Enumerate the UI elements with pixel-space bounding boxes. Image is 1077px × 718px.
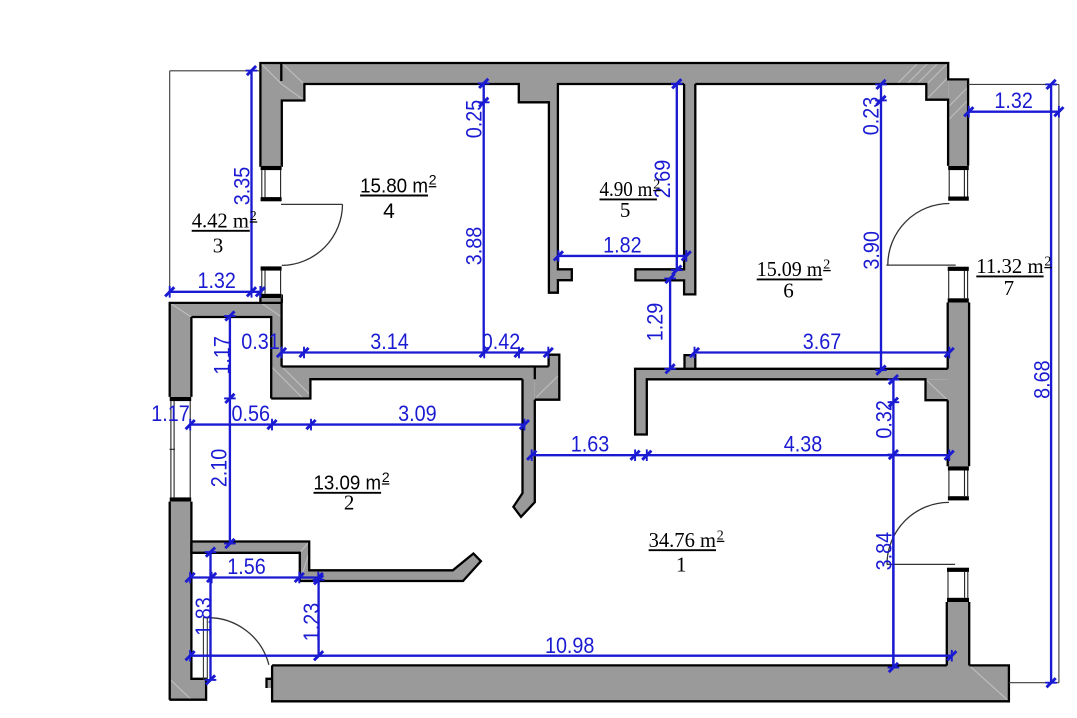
svg-text:2.10: 2.10 — [207, 449, 232, 488]
svg-text:3.88: 3.88 — [462, 227, 487, 266]
svg-text:15.80 m: 15.80 m — [360, 174, 428, 197]
svg-text:0.56: 0.56 — [232, 401, 271, 426]
svg-text:0.42: 0.42 — [482, 329, 521, 354]
svg-text:1.17: 1.17 — [151, 401, 190, 426]
svg-text:6: 6 — [783, 278, 794, 302]
svg-text:5: 5 — [620, 198, 631, 222]
svg-text:3.90: 3.90 — [859, 231, 884, 270]
svg-text:1.23: 1.23 — [299, 603, 324, 642]
svg-text:1.83: 1.83 — [191, 597, 216, 636]
svg-text:3.35: 3.35 — [230, 167, 255, 206]
svg-text:3.09: 3.09 — [398, 401, 437, 426]
svg-text:1.56: 1.56 — [227, 554, 266, 579]
svg-text:3: 3 — [213, 234, 224, 258]
svg-text:3.14: 3.14 — [370, 329, 409, 354]
svg-text:1.63: 1.63 — [571, 432, 610, 457]
svg-text:0.25: 0.25 — [462, 100, 487, 139]
svg-text:2: 2 — [429, 172, 437, 188]
svg-text:1.29: 1.29 — [643, 303, 668, 342]
svg-text:4.38: 4.38 — [784, 432, 823, 457]
svg-text:1.17: 1.17 — [209, 336, 234, 375]
svg-text:0.23: 0.23 — [859, 97, 884, 136]
svg-text:0.31: 0.31 — [241, 329, 280, 354]
svg-text:1.32: 1.32 — [994, 88, 1033, 113]
svg-text:1.32: 1.32 — [197, 268, 236, 293]
svg-text:34.76 m: 34.76 m — [649, 528, 716, 552]
svg-text:2: 2 — [344, 491, 355, 515]
svg-text:1: 1 — [676, 552, 687, 576]
svg-text:8.68: 8.68 — [1029, 360, 1054, 399]
svg-text:1.82: 1.82 — [603, 232, 642, 257]
svg-text:4: 4 — [383, 200, 395, 223]
svg-text:10.98: 10.98 — [545, 633, 595, 658]
svg-text:7: 7 — [1004, 276, 1015, 300]
svg-text:11.32 m: 11.32 m — [976, 254, 1043, 278]
svg-text:4.42 m: 4.42 m — [192, 209, 249, 233]
svg-text:2: 2 — [382, 469, 390, 485]
svg-text:3.84: 3.84 — [872, 532, 897, 571]
svg-text:0.32: 0.32 — [872, 400, 897, 439]
svg-text:3.67: 3.67 — [803, 329, 842, 354]
